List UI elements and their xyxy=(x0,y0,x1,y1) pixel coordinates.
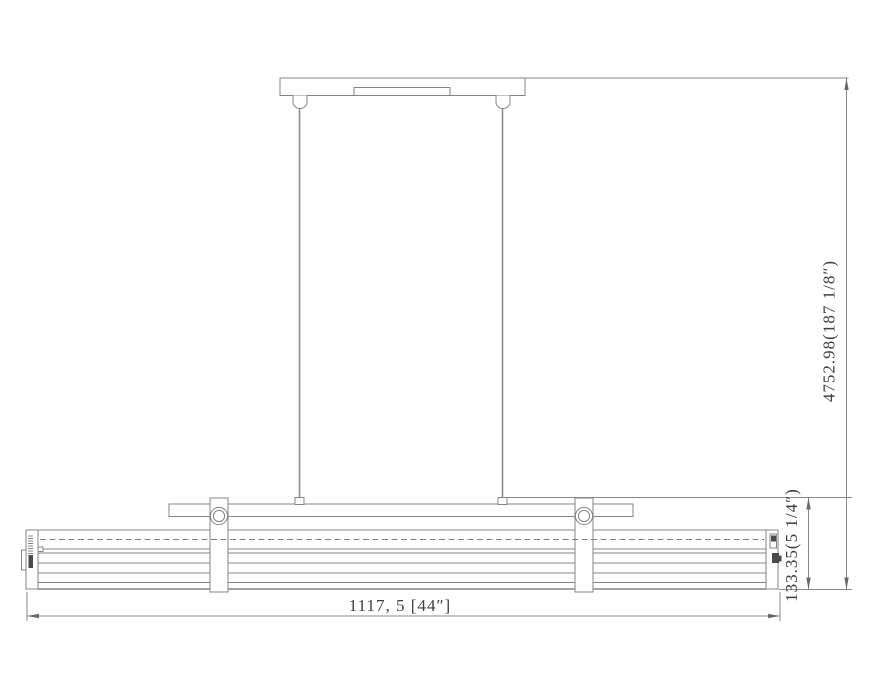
endcap-left-clip xyxy=(22,550,27,570)
arrowhead-up-icon xyxy=(844,78,848,90)
endcap-left-dark-fitting xyxy=(29,555,34,568)
cable-grip-right xyxy=(496,96,510,109)
arrowhead-down-icon xyxy=(844,578,848,590)
arrowhead-up-icon xyxy=(806,498,810,510)
support-rail xyxy=(169,504,633,517)
endcap-right-connector-tab xyxy=(779,556,782,562)
endcap-right-connector xyxy=(772,553,779,563)
pivot-inner-ring xyxy=(213,510,224,521)
fixture-height-label: 133.35(5 1/4″) xyxy=(782,488,801,602)
technical-drawing-canvas: 4752.98(187 1/8″) 133.35(5 1/4″) 1117, 5… xyxy=(0,0,875,700)
arrowhead-right-icon xyxy=(768,614,780,618)
cable-connector-left xyxy=(295,498,304,505)
overall-height-label: 4752.98(187 1/8″) xyxy=(820,260,839,402)
strap-pivot-left xyxy=(210,507,227,524)
endcap-right-dark-fitting xyxy=(771,536,776,542)
pivot-inner-ring xyxy=(578,510,589,521)
fixture-body xyxy=(26,530,778,589)
strap-pivot-right xyxy=(575,507,592,524)
arrowhead-left-icon xyxy=(27,614,39,618)
rib-start-fitting xyxy=(38,547,43,552)
overall-width-dimension: 1117, 5 [44″] xyxy=(27,592,780,621)
overall-width-label: 1117, 5 [44″] xyxy=(349,596,451,615)
arrowhead-down-icon xyxy=(806,578,810,590)
cable-grip-left xyxy=(293,96,307,109)
pendant-fixture-dimension-drawing: 4752.98(187 1/8″) 133.35(5 1/4″) 1117, 5… xyxy=(0,0,875,700)
cable-connector-right xyxy=(498,498,507,505)
ceiling-canopy xyxy=(280,78,525,109)
canopy-mounting-bracket xyxy=(354,88,450,96)
